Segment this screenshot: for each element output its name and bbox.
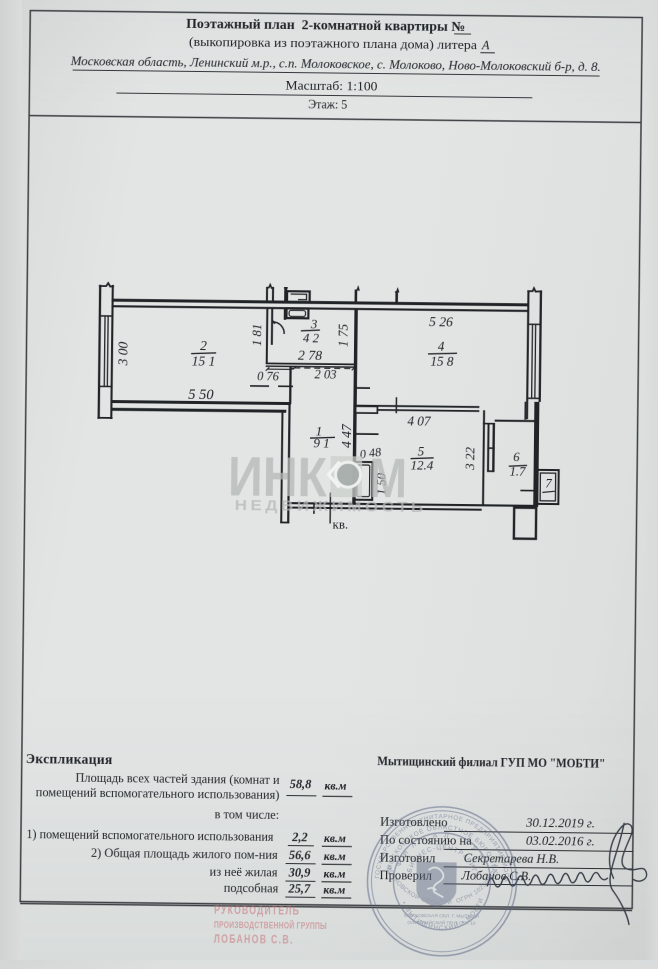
svg-text:ЛОБАНОВ С.В.: ЛОБАНОВ С.В. (214, 933, 294, 947)
svg-text:3: 3 (310, 317, 318, 331)
svg-text:3 00: 3 00 (115, 342, 130, 367)
svg-text:4 2: 4 2 (303, 331, 320, 345)
svg-text:5: 5 (418, 444, 425, 459)
svg-text:из неё жилая: из неё жилая (210, 865, 278, 880)
svg-text:2) Общая площадь жилого пом-ни: 2) Общая площадь жилого пом-ния (91, 846, 278, 862)
svg-text:ПРОИЗВОДСТВЕННОЙ ГРУППЫ: ПРОИЗВОДСТВЕННОЙ ГРУППЫ (214, 919, 327, 931)
svg-text:подсобная: подсобная (224, 881, 279, 896)
svg-text:НЕДВИЖИМОСТЬ: НЕДВИЖИМОСТЬ (235, 498, 427, 516)
svg-text:6: 6 (513, 450, 520, 464)
svg-text:30.12.2019 г.: 30.12.2019 г. (525, 816, 595, 831)
svg-text:15 1: 15 1 (192, 353, 216, 368)
svg-text:5 26: 5 26 (429, 314, 453, 329)
svg-text:Масштаб: 1:100: Масштаб: 1:100 (285, 78, 377, 93)
svg-text:«МОСКОВСКОЕ ОБЛАСТНОЕ БЮРО ТЕХ: «МОСКОВСКОЕ ОБЛАСТНОЕ БЮРО ТЕХНИЧЕСКОЙ (0, 0, 509, 880)
svg-text:4 07: 4 07 (407, 413, 432, 428)
svg-text:3 22: 3 22 (462, 447, 477, 471)
svg-text:Поэтажный план 2-комнатной кв: Поэтажный план 2-комнатной квартиры № (186, 16, 465, 34)
svg-text:12.4: 12.4 (411, 457, 434, 472)
svg-text:2 78: 2 78 (298, 348, 322, 363)
svg-text:2 03: 2 03 (314, 367, 336, 381)
svg-text:А: А (481, 38, 490, 52)
svg-text:0 76: 0 76 (257, 369, 280, 383)
svg-text:(выкопировка из поэтажного пла: (выкопировка из поэтажного плана дома) л… (189, 35, 478, 52)
svg-text:Этаж: 5: Этаж: 5 (308, 97, 347, 111)
svg-text:1.7: 1.7 (510, 465, 527, 479)
svg-text:30,9: 30,9 (288, 866, 311, 880)
svg-text:БИЗНЕС-ЦЕНТР«РИГА-ЛЕНД»: БИЗНЕС-ЦЕНТР«РИГА-ЛЕНД» (0, 0, 489, 882)
svg-text:Ф И Л И А Л Г У П М О: Ф И Л И А Л Г У П М О (0, 0, 501, 882)
svg-text:МОСКОВСКАЯ ОБЛ. Г. МЫТИЩИ: МОСКОВСКАЯ ОБЛ. Г. МЫТИЩИ (404, 913, 480, 920)
svg-text:РУКОВОДИТЕЛЬ: РУКОВОДИТЕЛЬ (214, 904, 300, 918)
svg-text:ГОСУДАРСТВЕННОЕ УНИТАРНОЕ ПРЕД: ГОСУДАРСТВЕННОЕ УНИТАРНОЕ ПРЕДПРИЯТИЕ МО… (0, 0, 520, 882)
svg-text:кв.м: кв.м (323, 867, 345, 880)
svg-text:25,7: 25,7 (287, 882, 311, 896)
svg-text:03.02.2016 г.: 03.02.2016 г. (526, 834, 595, 849)
svg-text:Площадь всех частей здания (ко: Площадь всех частей здания (комнат и (75, 771, 280, 787)
svg-text:кв.м: кв.м (324, 779, 346, 792)
svg-text:5 50: 5 50 (188, 387, 214, 403)
svg-text:1 81: 1 81 (250, 324, 264, 347)
svg-text:кв.м: кв.м (324, 850, 346, 863)
svg-text:помещений вспомогательного исп: помещений вспомогательного использования… (36, 785, 280, 802)
svg-text:кв.м: кв.м (323, 883, 345, 896)
svg-text:15 8: 15 8 (430, 353, 454, 368)
svg-text:4 47: 4 47 (339, 423, 354, 448)
svg-text:58,8: 58,8 (290, 777, 312, 791)
svg-text:1 75: 1 75 (336, 323, 351, 347)
svg-text:кв.м: кв.м (324, 832, 346, 845)
svg-text:56,6: 56,6 (289, 848, 312, 862)
svg-text:Мытищинский филиал ГУП МО "МОБ: Мытищинский филиал ГУП МО "МОБТИ" (377, 754, 605, 771)
svg-text:кв.: кв. (332, 517, 348, 532)
svg-text:1) помещений вспомогательного: 1) помещений вспомогательного использова… (26, 827, 273, 844)
svg-text:в том числе:: в том числе: (215, 807, 280, 822)
svg-text:2,2: 2,2 (291, 830, 308, 844)
svg-text:Экспликация: Экспликация (26, 751, 113, 767)
svg-text:2: 2 (200, 338, 207, 353)
svg-text:7: 7 (545, 476, 552, 490)
svg-text:4: 4 (438, 339, 445, 354)
